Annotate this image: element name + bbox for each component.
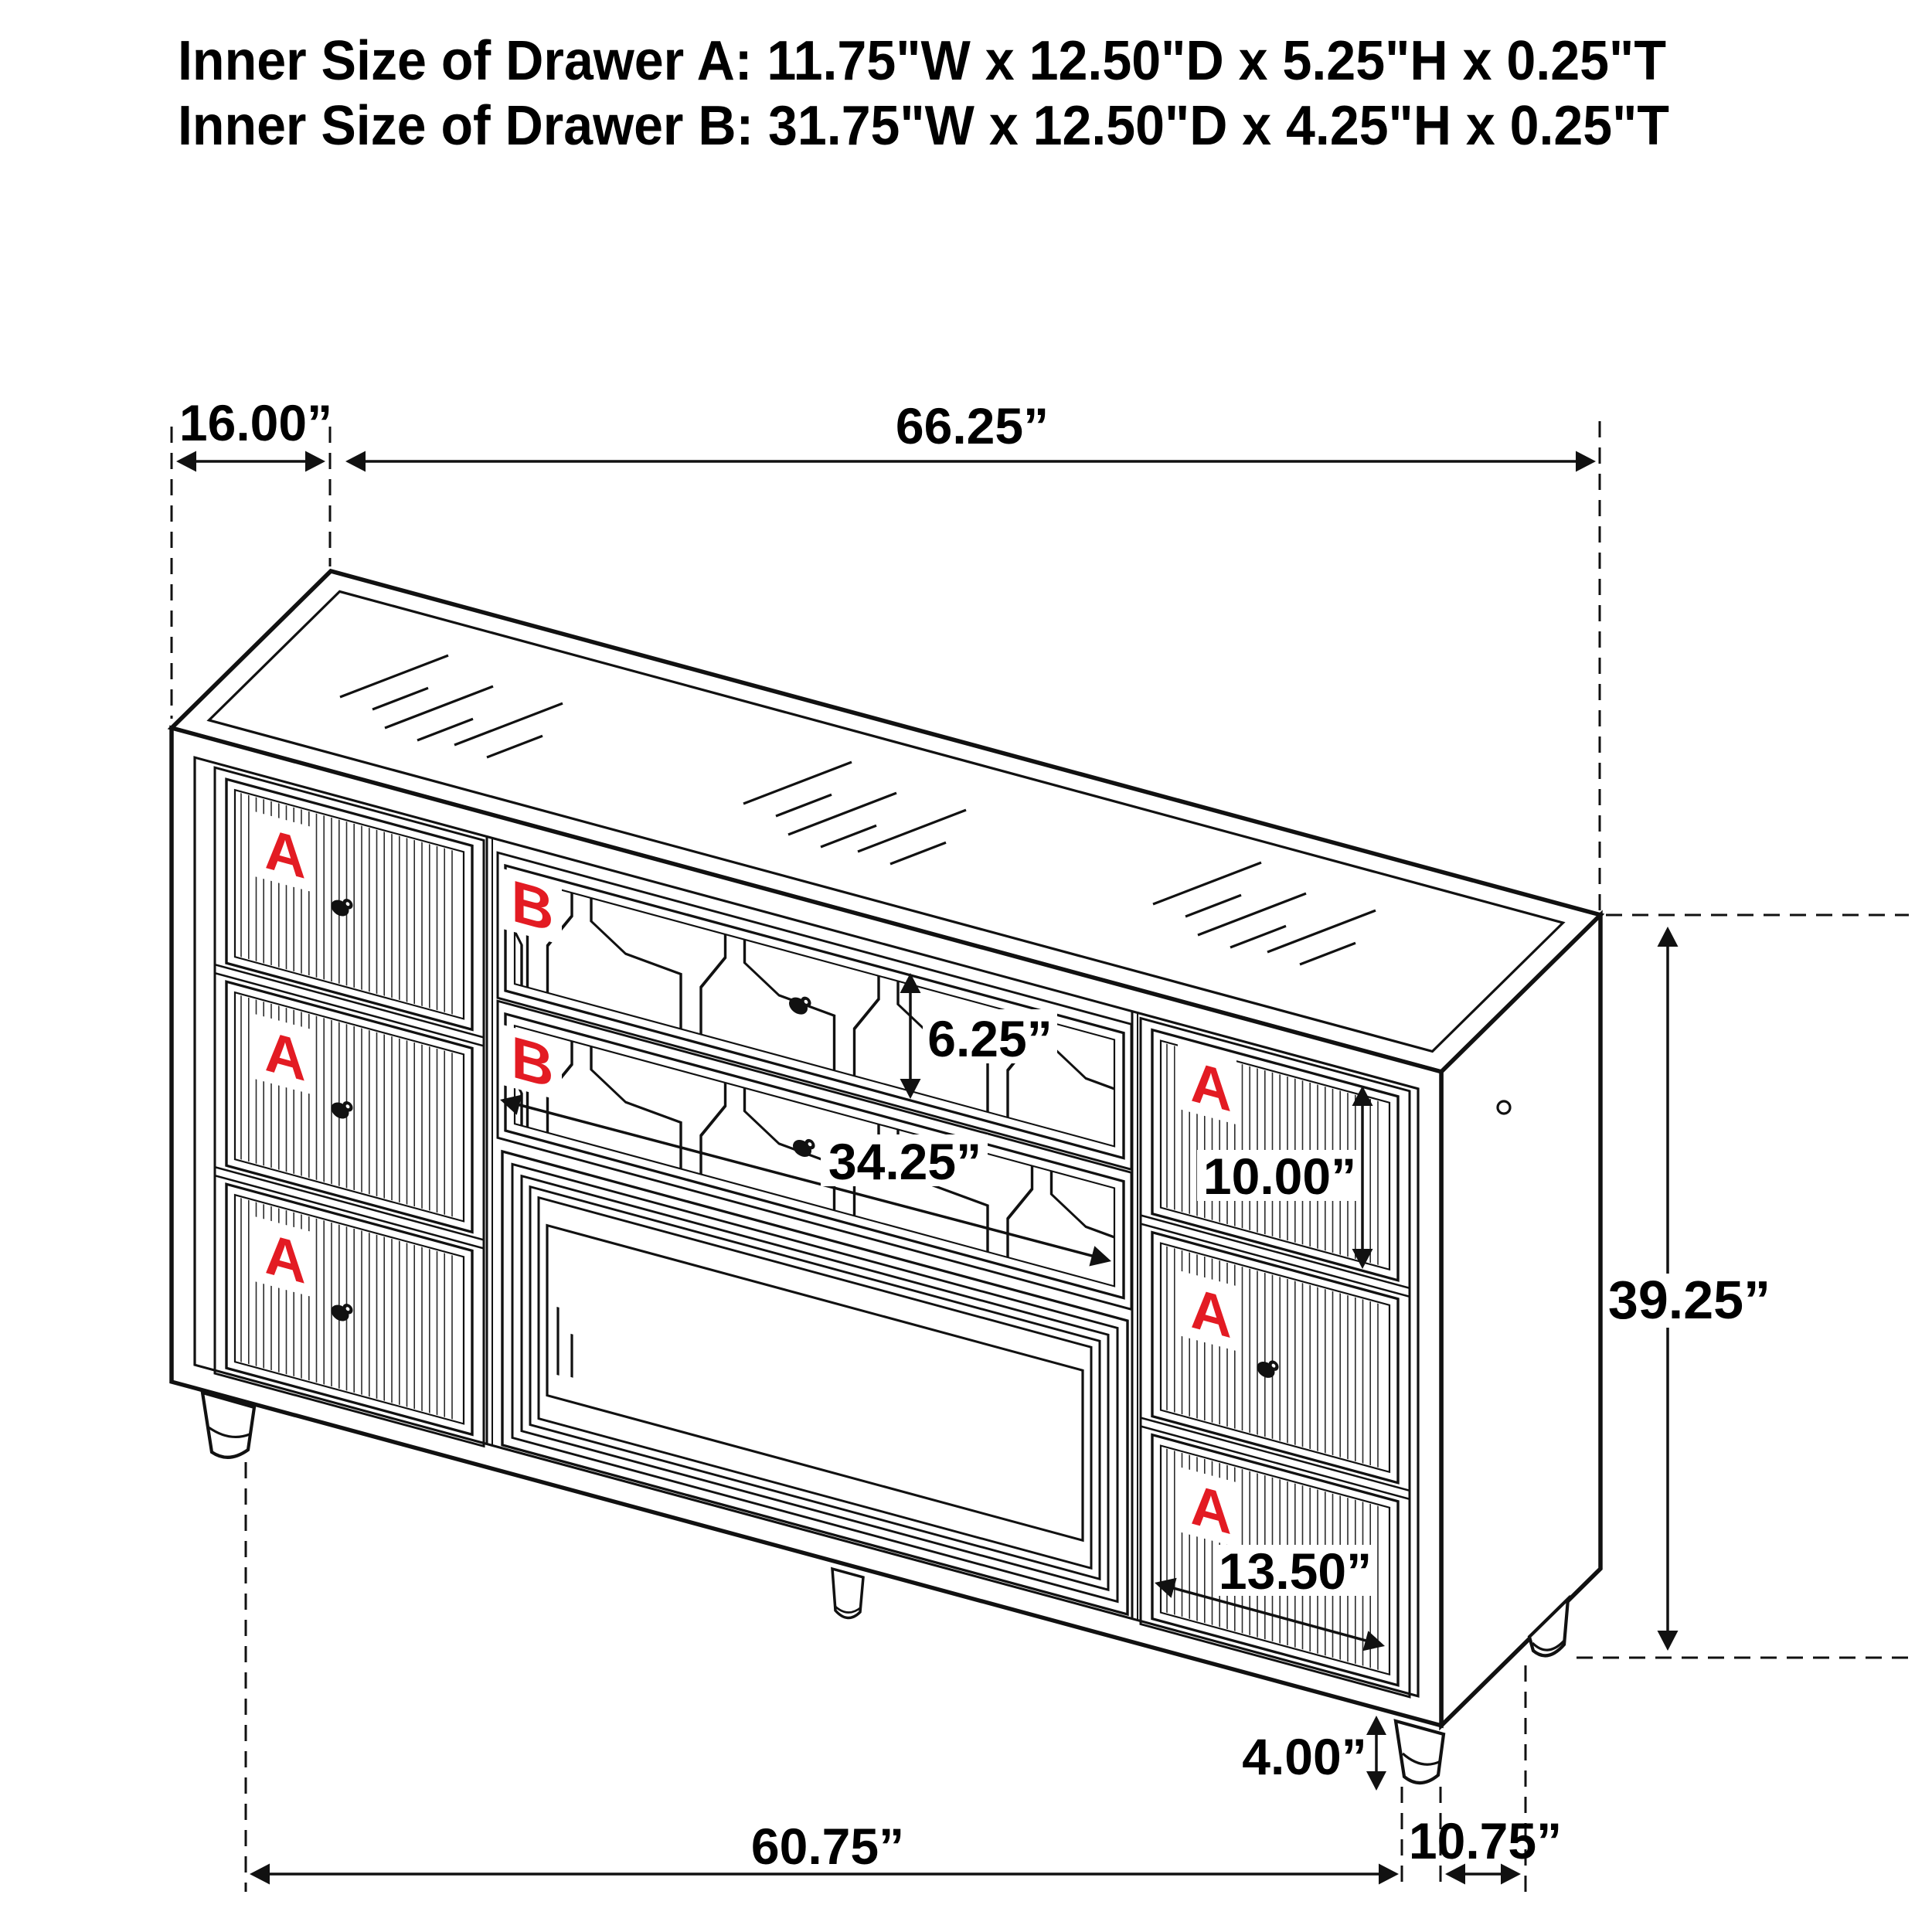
svg-text:A: A: [1190, 1471, 1231, 1546]
svg-text:4.00”: 4.00”: [1242, 1728, 1366, 1785]
svg-text:39.25”: 39.25”: [1608, 1270, 1770, 1330]
svg-text:Inner Size of Drawer B: 31.75": Inner Size of Drawer B: 31.75"W x 12.50"…: [178, 95, 1669, 157]
svg-text:10.75”: 10.75”: [1409, 1812, 1562, 1869]
svg-text:Inner Size of Drawer A: 11.75": Inner Size of Drawer A: 11.75"W x 12.50"…: [178, 30, 1666, 92]
svg-text:16.00”: 16.00”: [179, 394, 332, 451]
svg-text:66.25”: 66.25”: [896, 397, 1049, 454]
svg-text:A: A: [264, 1019, 305, 1094]
svg-text:A: A: [1190, 1049, 1231, 1124]
svg-text:13.50”: 13.50”: [1219, 1543, 1372, 1600]
svg-text:60.75”: 60.75”: [751, 1818, 904, 1875]
svg-text:A: A: [1190, 1275, 1231, 1350]
svg-text:B: B: [512, 868, 554, 944]
svg-text:10.00”: 10.00”: [1203, 1148, 1356, 1205]
svg-text:34.25”: 34.25”: [828, 1133, 981, 1190]
svg-text:6.25”: 6.25”: [927, 1010, 1052, 1067]
svg-text:A: A: [264, 816, 305, 891]
svg-text:A: A: [264, 1221, 305, 1296]
svg-text:B: B: [512, 1024, 554, 1100]
